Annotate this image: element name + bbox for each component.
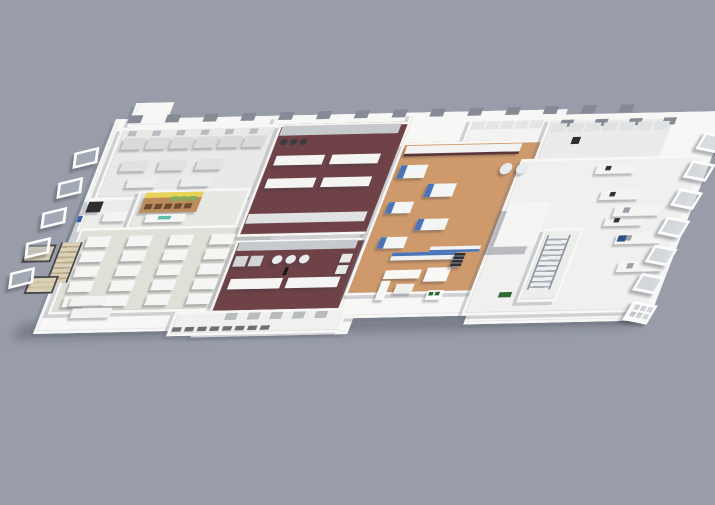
- desk-row: [599, 190, 642, 201]
- cafeteria-table: [191, 278, 218, 289]
- servery-counter: [69, 296, 107, 306]
- west-bench: [101, 211, 128, 221]
- cafeteria-table: [103, 295, 130, 306]
- lab-table-2: [179, 176, 213, 186]
- window-frame-left: [72, 147, 99, 169]
- cafeteria-table: [84, 236, 111, 247]
- cafeteria-table: [150, 279, 177, 290]
- cafeteria-table: [185, 293, 212, 304]
- prep-table: [320, 176, 372, 187]
- island-counter-2: [284, 277, 340, 289]
- green-crate: [498, 292, 513, 298]
- cafeteria-table: [203, 248, 230, 259]
- pass-shelf: [171, 327, 182, 332]
- cafeteria-table: [108, 280, 135, 291]
- lab-bench: [193, 136, 219, 148]
- pass-shelf: [247, 326, 258, 331]
- cafeteria-table: [73, 266, 100, 277]
- cafeteria-table: [197, 263, 224, 274]
- cafeteria-table: [209, 234, 236, 245]
- pass-shelf: [234, 326, 245, 331]
- lab-table: [119, 160, 150, 171]
- pass-shelf: [209, 326, 220, 331]
- back-window: [580, 105, 597, 113]
- sofa: [383, 270, 422, 280]
- pass-shelf: [184, 327, 195, 332]
- cafeteria-table: [156, 264, 183, 275]
- desk-row: [594, 164, 637, 175]
- cafeteria-table: [144, 294, 171, 305]
- prep-table: [273, 155, 325, 166]
- cafeteria-table: [114, 265, 141, 276]
- pass-shelf: [222, 326, 233, 331]
- back-window: [618, 104, 635, 112]
- lab-table-2: [125, 178, 159, 188]
- window-frame-left: [40, 207, 67, 229]
- screenshot-root: [0, 0, 715, 505]
- desk-row: [603, 216, 646, 227]
- brand-logo: [158, 216, 172, 220]
- servery-counter-2: [69, 308, 112, 319]
- prep-table: [329, 154, 381, 165]
- cafeteria-table: [161, 249, 188, 260]
- pass-shelf: [196, 327, 207, 332]
- window-frame-left: [56, 177, 83, 199]
- cafeteria-table: [79, 251, 106, 262]
- cafeteria-table: [167, 234, 194, 245]
- cafeteria-table: [120, 250, 147, 261]
- prep-table: [264, 178, 316, 189]
- lab-bench: [217, 136, 243, 148]
- cafeteria-table: [126, 235, 153, 246]
- lab-table: [195, 159, 226, 170]
- pass-shelf: [259, 325, 270, 330]
- floorplan-plan: [30, 100, 715, 343]
- cafeteria-table: [67, 281, 94, 292]
- lab-table: [157, 160, 188, 171]
- hall-bench: [612, 205, 663, 217]
- island-counter: [227, 278, 283, 290]
